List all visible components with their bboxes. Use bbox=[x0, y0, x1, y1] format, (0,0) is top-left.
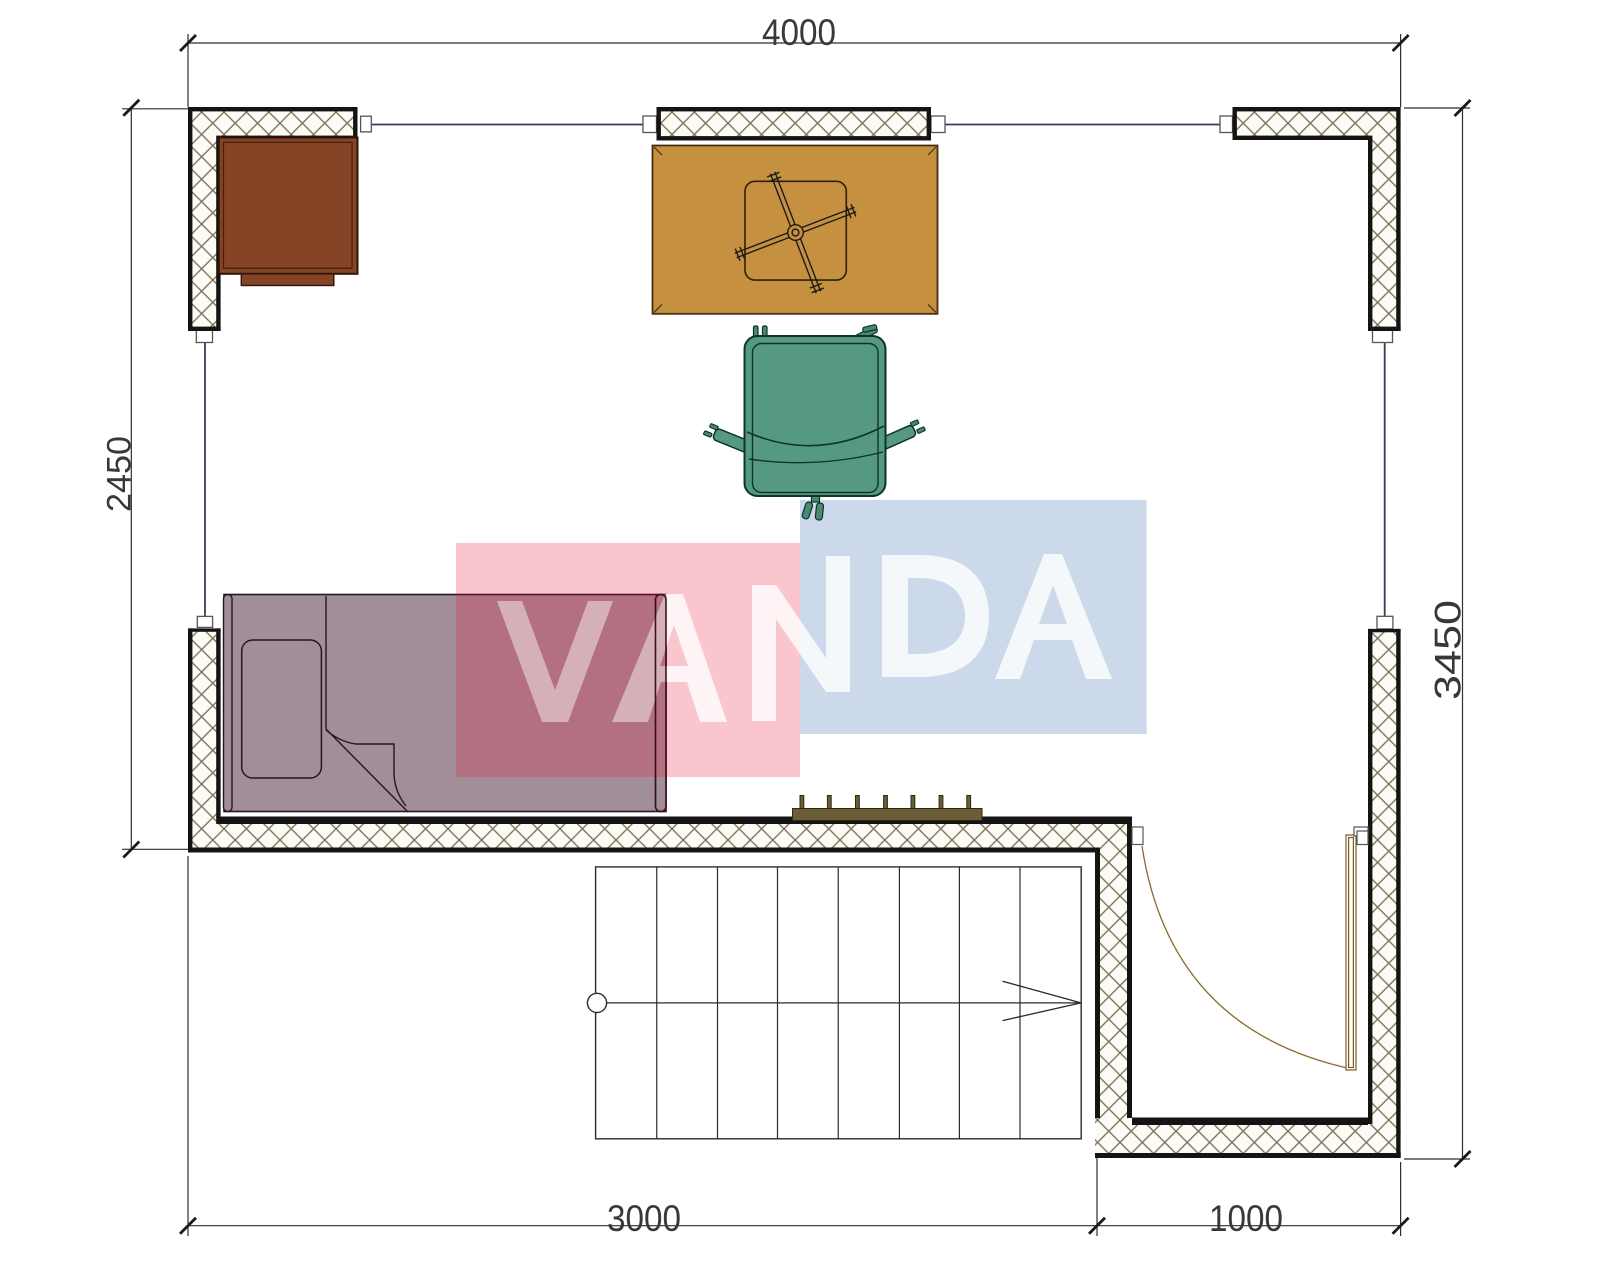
svg-text:4000: 4000 bbox=[762, 12, 836, 53]
svg-text:1000: 1000 bbox=[1209, 1198, 1283, 1239]
svg-text:2450: 2450 bbox=[101, 436, 139, 512]
svg-text:3000: 3000 bbox=[607, 1198, 681, 1239]
svg-text:3450: 3450 bbox=[1428, 600, 1469, 700]
